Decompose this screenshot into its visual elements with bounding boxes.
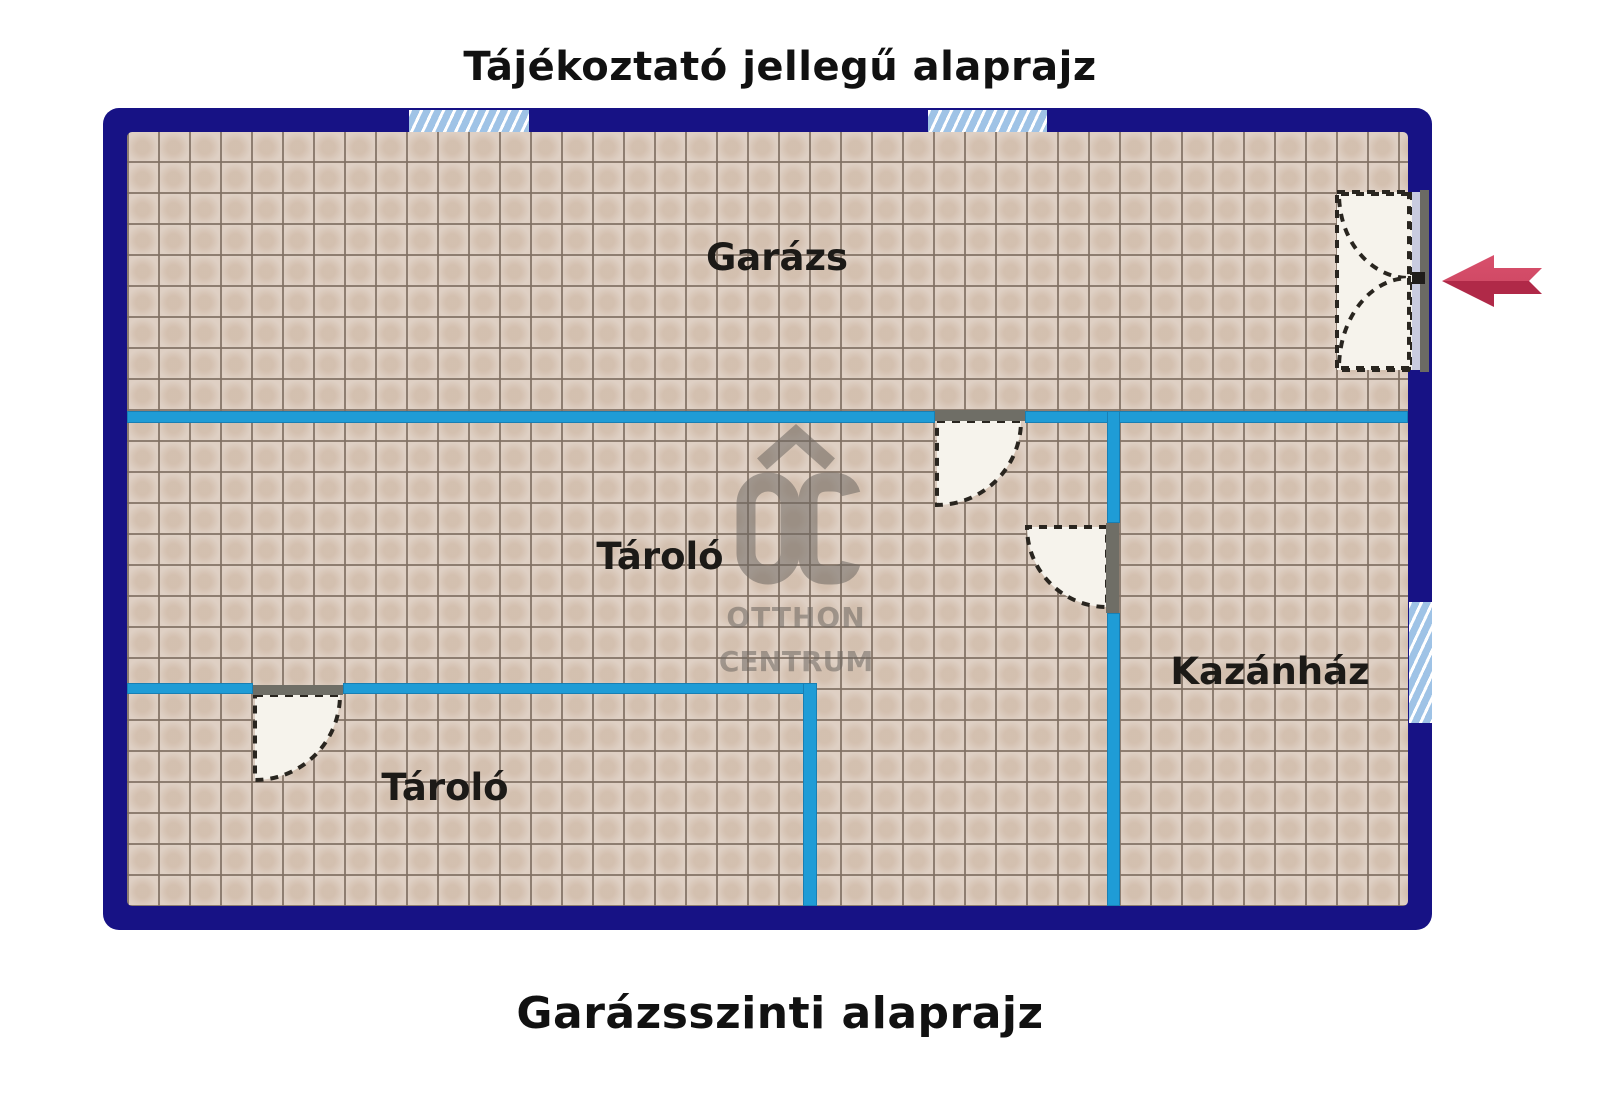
page-title-bottom: Garázsszinti alaprajz (80, 988, 1480, 1039)
page-title-top: Tájékoztató jellegű alaprajz (80, 44, 1480, 90)
room-label-storage-1: Tároló (560, 535, 760, 578)
door-swing-garage-storage (935, 410, 1025, 505)
logo-roof-icon (762, 434, 830, 464)
double-door-garage-entrance (1337, 190, 1429, 372)
entrance-arrow-icon (1442, 255, 1542, 307)
logo-letter-c-icon (808, 482, 851, 575)
logo-text-centrum: CENTRUM (720, 645, 872, 676)
door-swing-storage-boiler (1027, 523, 1119, 613)
logo-text-otthon: OTTHON (726, 601, 865, 634)
room-label-boiler-room: Kazánház (1145, 650, 1395, 693)
room-label-garage: Garázs (677, 236, 877, 279)
room-label-storage-2: Tároló (345, 766, 545, 809)
door-swing-storage-storage (253, 685, 343, 780)
floorplan-outer-walls: OTTHON CENTRUM Garázs Tároló Kazánház Tá… (103, 108, 1432, 930)
